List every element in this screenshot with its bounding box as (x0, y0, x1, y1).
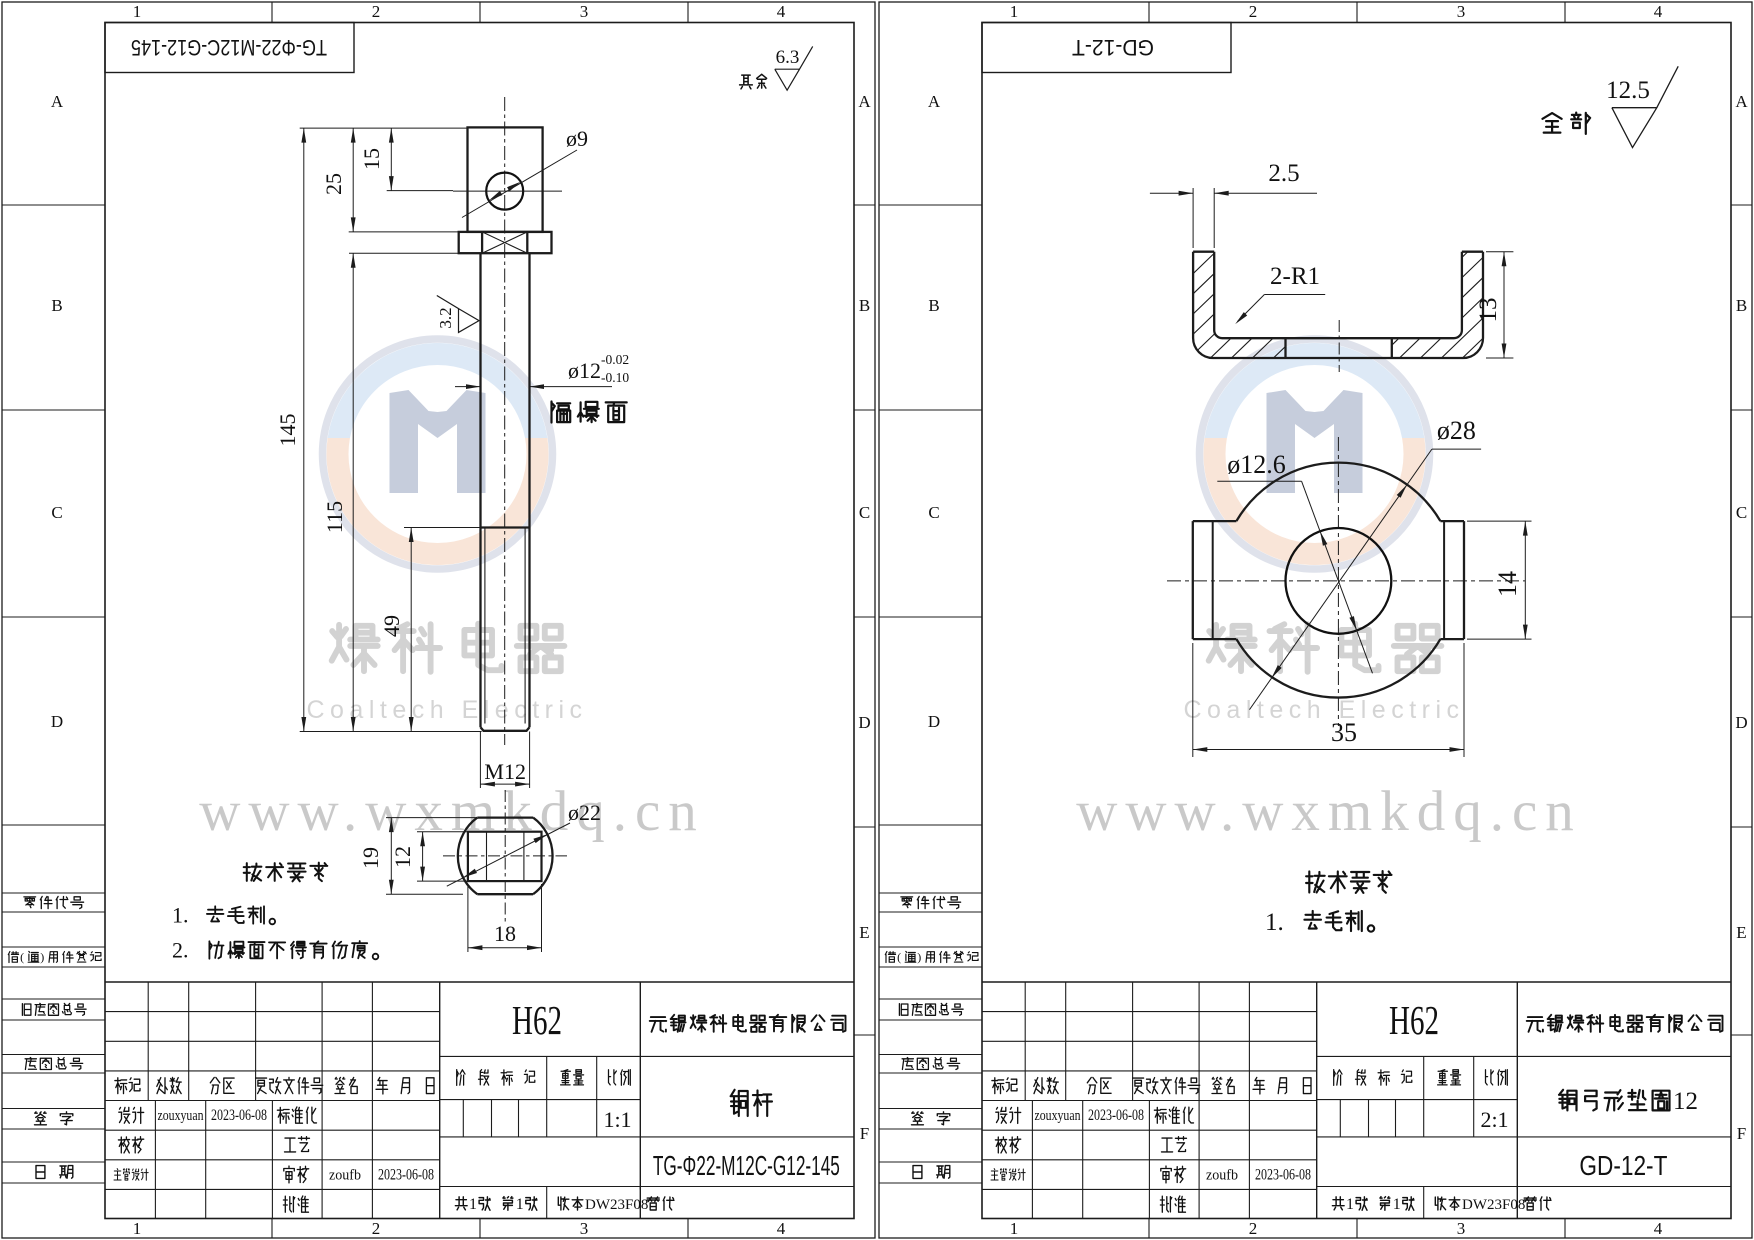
svg-text:35: 35 (1331, 718, 1357, 747)
svg-text:ø28: ø28 (1437, 416, 1476, 445)
svg-text:49: 49 (379, 615, 404, 637)
svg-text:1:1: 1:1 (603, 1107, 631, 1132)
svg-text:F: F (1737, 1124, 1746, 1143)
svg-text:2: 2 (1249, 1219, 1258, 1238)
svg-text:14: 14 (1493, 571, 1522, 597)
svg-text:www.wxmkdq.cn: www.wxmkdq.cn (1076, 780, 1582, 843)
svg-text:115: 115 (322, 501, 347, 533)
svg-text:12.5: 12.5 (1606, 77, 1650, 104)
svg-text:B: B (1736, 296, 1747, 315)
svg-text:C: C (51, 503, 62, 522)
svg-text:3.2: 3.2 (436, 307, 455, 328)
svg-text:D: D (51, 712, 63, 731)
svg-text:TG-Φ22-M12C-G12-145: TG-Φ22-M12C-G12-145 (653, 1150, 840, 1181)
svg-text:2023-06-08: 2023-06-08 (1255, 1166, 1311, 1183)
svg-text:A: A (51, 92, 64, 111)
svg-text:DW23F08: DW23F08 (1462, 1197, 1525, 1213)
svg-text:1: 1 (469, 1196, 477, 1213)
svg-text:C: C (928, 503, 939, 522)
svg-text:Coaltech Electric: Coaltech Electric (1183, 696, 1464, 724)
svg-text:2023-06-08: 2023-06-08 (211, 1107, 267, 1124)
svg-text:B: B (859, 296, 870, 315)
svg-text:13: 13 (1475, 298, 1502, 323)
svg-text:H62: H62 (512, 997, 562, 1043)
svg-text:1.: 1. (1265, 909, 1284, 936)
svg-text:12: 12 (1673, 1088, 1698, 1115)
svg-text:A: A (928, 92, 941, 111)
svg-text:F: F (860, 1124, 869, 1143)
svg-text:E: E (859, 923, 869, 942)
svg-text:1: 1 (516, 1196, 524, 1213)
svg-text:(: ( (897, 950, 901, 964)
svg-text:4: 4 (1654, 1219, 1663, 1238)
svg-text:C: C (859, 503, 870, 522)
svg-text:A: A (1735, 92, 1748, 111)
svg-text:-0.02: -0.02 (601, 352, 629, 367)
svg-text:ø12.6: ø12.6 (1227, 450, 1286, 479)
svg-text:zouxyuan: zouxyuan (158, 1108, 205, 1124)
svg-text:D: D (928, 712, 940, 731)
svg-text:1.: 1. (172, 903, 189, 928)
svg-text:www.wxmkdq.cn: www.wxmkdq.cn (199, 780, 705, 843)
svg-text:1: 1 (1346, 1196, 1354, 1213)
svg-text:4: 4 (1654, 2, 1663, 21)
svg-text:1: 1 (1393, 1196, 1401, 1213)
svg-text:1: 1 (1010, 2, 1019, 21)
svg-text:C: C (1736, 503, 1747, 522)
svg-text:ø12: ø12 (568, 358, 601, 383)
svg-text:4: 4 (777, 2, 786, 21)
svg-text:DW23F08: DW23F08 (585, 1197, 648, 1213)
svg-text:-0.10: -0.10 (601, 370, 629, 385)
svg-text:A: A (858, 92, 871, 111)
svg-text:): ) (40, 950, 44, 964)
svg-text:2:1: 2:1 (1480, 1107, 1508, 1132)
svg-text:Coaltech Electric: Coaltech Electric (306, 696, 587, 724)
svg-text:4: 4 (777, 1219, 786, 1238)
svg-text:25: 25 (321, 173, 346, 195)
svg-text:18: 18 (494, 921, 516, 946)
svg-text:15: 15 (359, 148, 384, 170)
svg-text:B: B (928, 296, 939, 315)
svg-text:19: 19 (358, 847, 383, 869)
svg-text:B: B (51, 296, 62, 315)
svg-text:2: 2 (372, 1219, 381, 1238)
svg-text:12: 12 (390, 846, 415, 868)
svg-text:TG-Φ22-M12C-G12-145: TG-Φ22-M12C-G12-145 (131, 35, 327, 60)
svg-text:D: D (858, 713, 870, 732)
svg-text:E: E (1736, 923, 1746, 942)
svg-text:1: 1 (133, 1219, 142, 1238)
svg-text:1: 1 (133, 2, 142, 21)
svg-text:3: 3 (1457, 2, 1466, 21)
svg-text:145: 145 (275, 414, 300, 447)
svg-text:zoufb: zoufb (1206, 1167, 1238, 1183)
svg-text:2-R1: 2-R1 (1270, 263, 1320, 290)
svg-text:(: ( (20, 950, 24, 964)
svg-text:3: 3 (1457, 1219, 1466, 1238)
svg-text:1: 1 (1010, 1219, 1019, 1238)
svg-text:2: 2 (1249, 2, 1258, 21)
svg-text:2.: 2. (172, 938, 189, 963)
svg-text:2023-06-08: 2023-06-08 (1088, 1107, 1144, 1124)
svg-text:6.3: 6.3 (776, 47, 800, 68)
svg-text:2: 2 (372, 2, 381, 21)
svg-text:zouxyuan: zouxyuan (1035, 1108, 1082, 1124)
svg-text:H62: H62 (1389, 997, 1439, 1043)
svg-text:2.5: 2.5 (1268, 160, 1299, 187)
svg-text:GD-12-T: GD-12-T (1072, 35, 1154, 60)
svg-text:D: D (1735, 713, 1747, 732)
svg-text:3: 3 (580, 2, 589, 21)
svg-text:M12: M12 (484, 759, 526, 784)
svg-text:3: 3 (580, 1219, 589, 1238)
svg-text:): ) (917, 950, 921, 964)
svg-text:GD-12-T: GD-12-T (1579, 1150, 1667, 1181)
svg-text:zoufb: zoufb (329, 1167, 361, 1183)
svg-text:ø9: ø9 (566, 126, 588, 151)
svg-text:2023-06-08: 2023-06-08 (378, 1166, 434, 1183)
svg-text:ø22: ø22 (568, 800, 601, 825)
